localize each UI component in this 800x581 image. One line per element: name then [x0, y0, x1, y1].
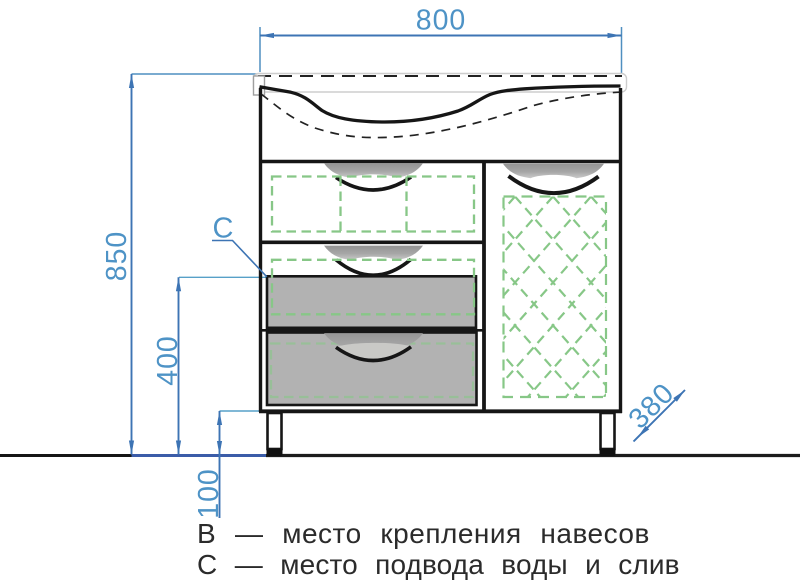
svg-text:800: 800: [416, 5, 467, 37]
svg-text:В — место крепления навесов: В — место крепления навесов: [197, 518, 650, 549]
svg-text:850: 850: [101, 231, 133, 282]
svg-text:С — место подвода воды и слив: С — место подвода воды и слив: [197, 549, 680, 580]
svg-text:400: 400: [152, 335, 184, 386]
svg-text:100: 100: [193, 468, 225, 519]
